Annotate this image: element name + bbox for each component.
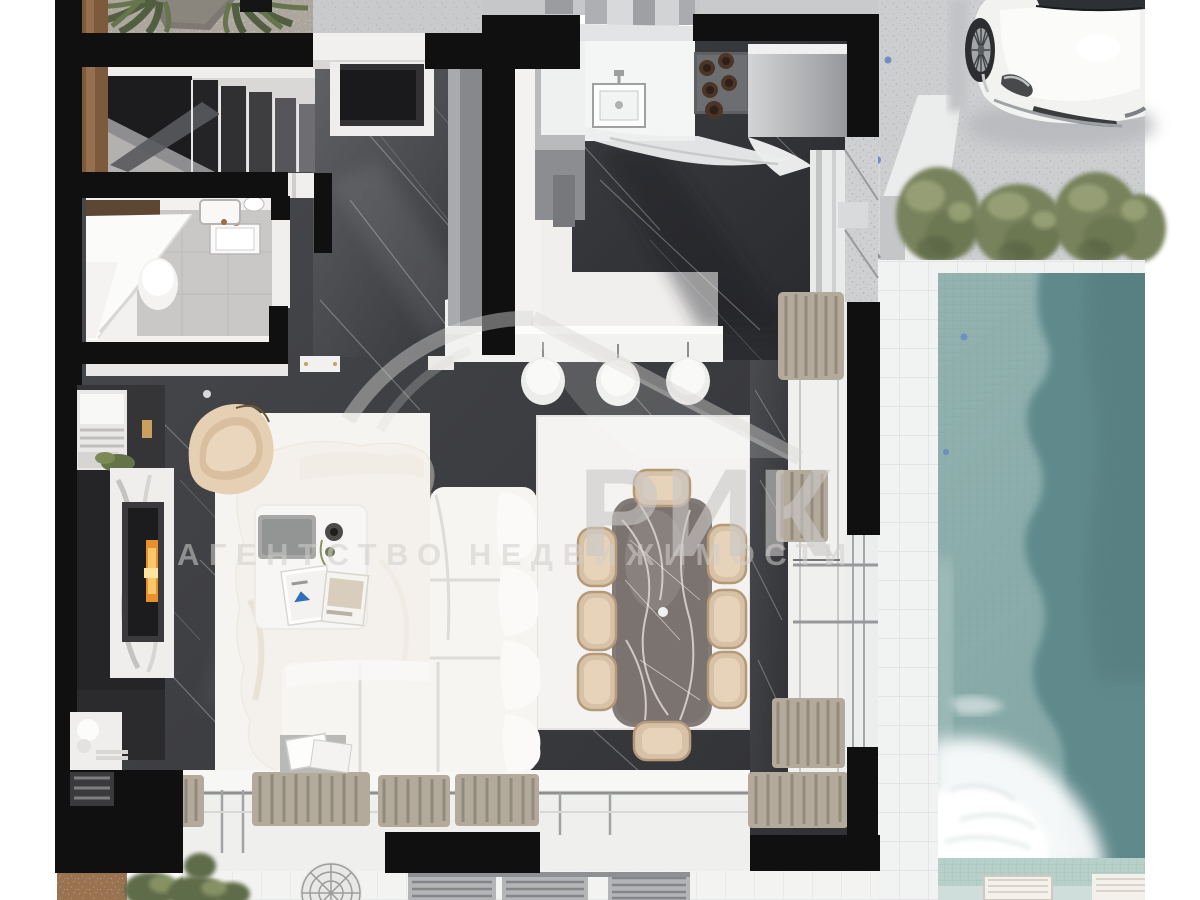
svg-text:АГЕНТСТВО НЕДВИЖИМОСТИ: АГЕНТСТВО НЕДВИЖИМОСТИ bbox=[177, 537, 856, 572]
